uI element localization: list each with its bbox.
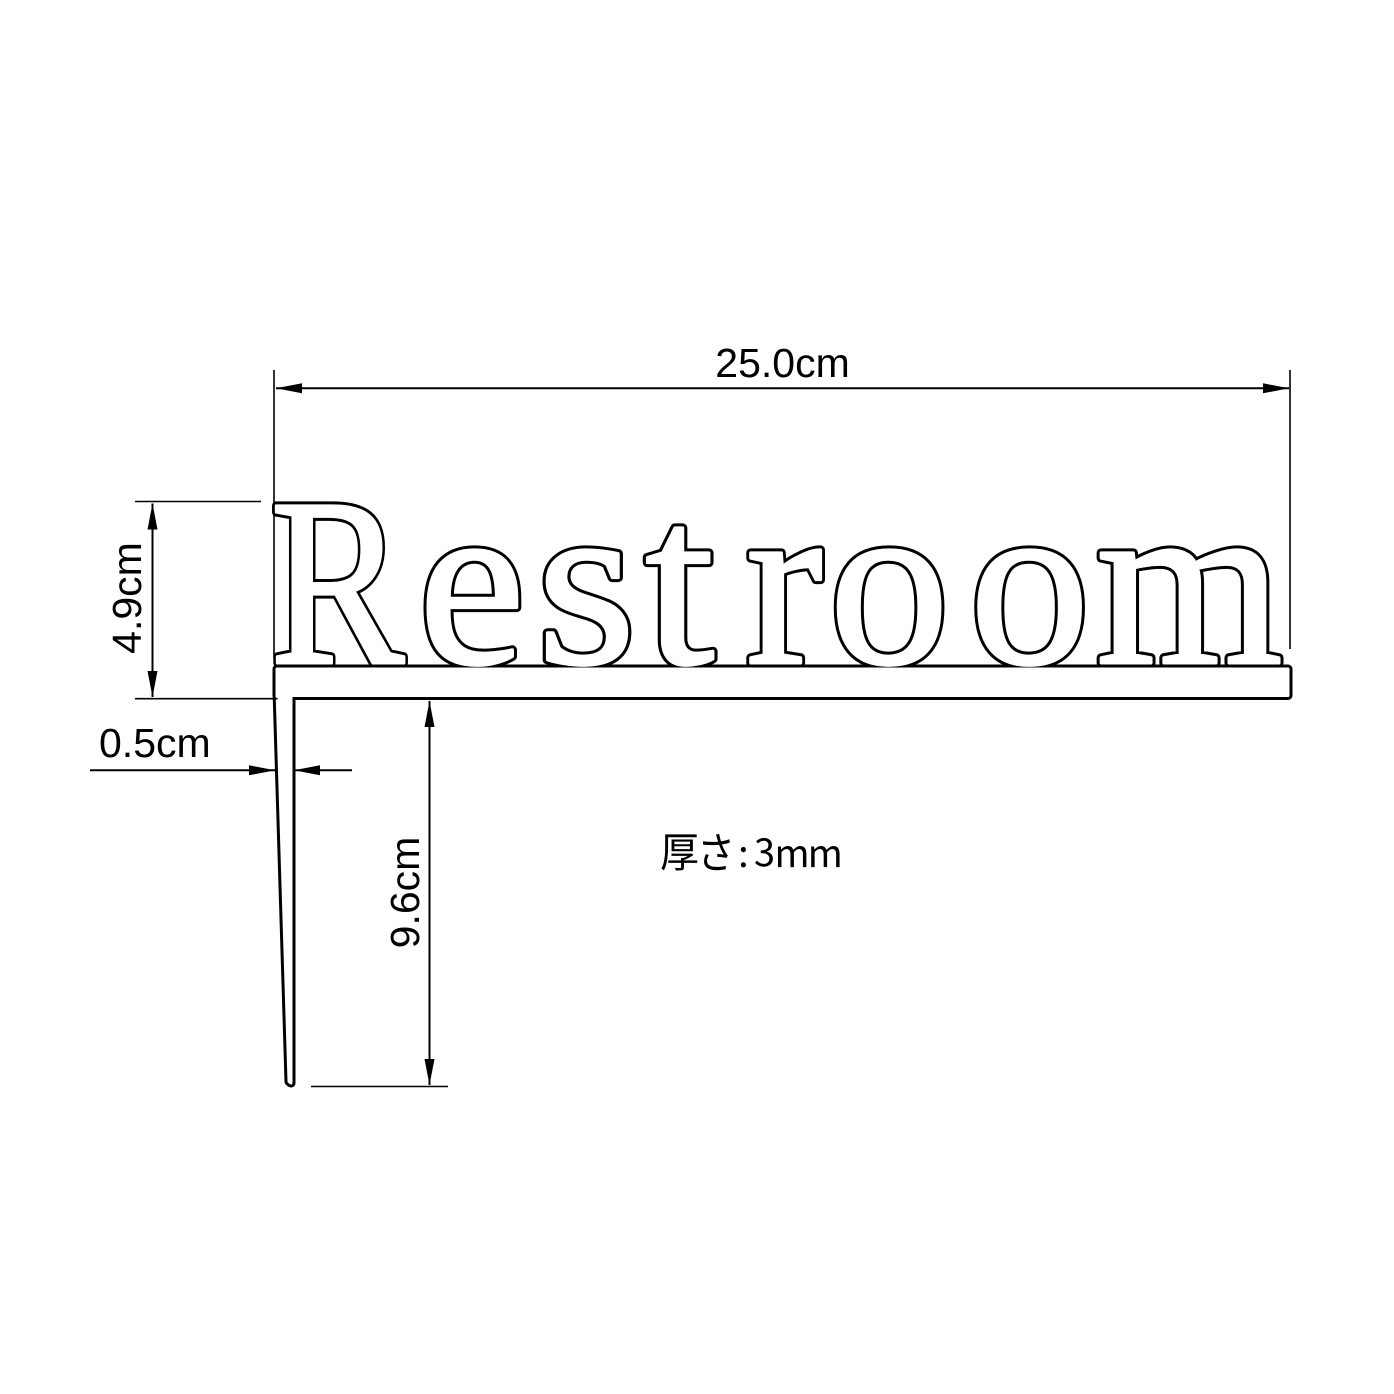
svg-text:9.6cm: 9.6cm: [382, 837, 428, 949]
svg-text:4.9cm: 4.9cm: [104, 542, 150, 654]
svg-text:0.5cm: 0.5cm: [99, 720, 211, 766]
svg-text:25.0cm: 25.0cm: [715, 340, 849, 386]
